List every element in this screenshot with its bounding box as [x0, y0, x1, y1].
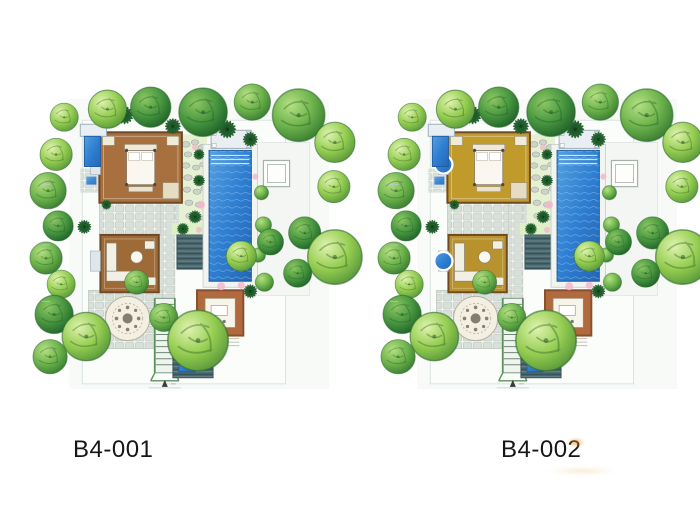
site-plan-drawing	[392, 84, 694, 406]
site-plan-drawing	[44, 84, 346, 406]
orange-smudge-streak	[534, 466, 630, 476]
plan-comparison-sheet: B4-001 B4-002	[0, 0, 700, 530]
site-plan-b4-002	[392, 84, 694, 406]
plan-label-b4-001: B4-001	[73, 436, 153, 464]
site-plan-b4-001	[44, 84, 346, 406]
plan-label-b4-002: B4-002	[501, 436, 581, 464]
